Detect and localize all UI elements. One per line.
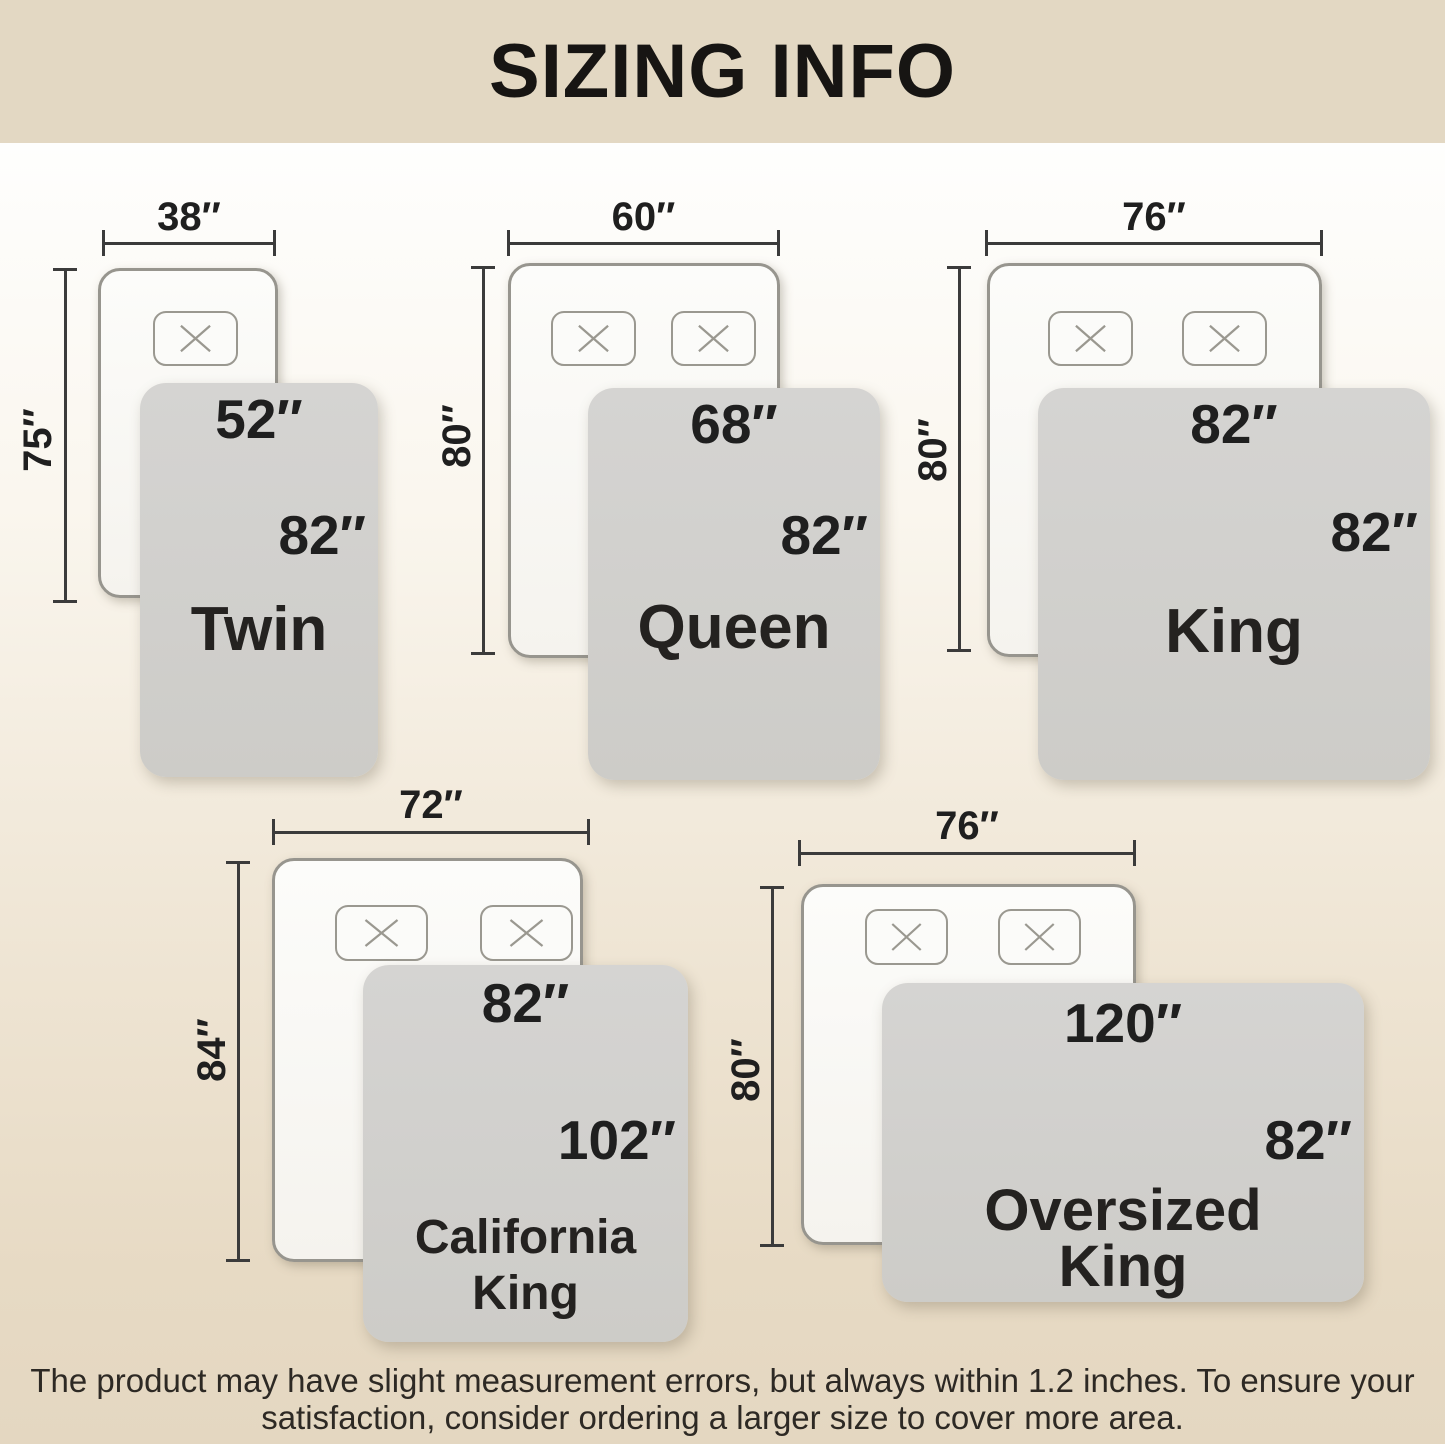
size-name-label: Queen	[588, 597, 880, 659]
bed-length-label: 80″	[725, 1010, 767, 1130]
blanket: 120″ 82″ Oversized King	[882, 983, 1364, 1302]
pillow-x-icon	[1050, 313, 1131, 364]
pillow	[480, 905, 573, 961]
bed-width-label: 72″	[272, 784, 590, 826]
bed-width-dimension-line	[272, 831, 590, 834]
pillow	[153, 311, 238, 366]
blanket-length-label: 82″	[780, 507, 868, 563]
pillow	[671, 311, 756, 366]
blanket-length-label: 82″	[278, 507, 366, 563]
bed-width-dimension-line	[985, 242, 1323, 245]
pillow-x-icon	[1000, 911, 1079, 963]
header: SIZING INFO	[0, 0, 1445, 143]
bed-length-dimension-line	[958, 266, 961, 652]
size-name-label: Twin	[140, 599, 378, 661]
blanket: 82″ 82″ King	[1038, 388, 1430, 780]
pillow-x-icon	[553, 313, 634, 364]
bed-length-dimension-line	[64, 268, 67, 603]
pillow	[1182, 311, 1267, 366]
footer-note: The product may have slight measurement …	[0, 1362, 1445, 1436]
bed-length-label: 84″	[191, 990, 233, 1110]
bed-length-dimension-line	[771, 886, 774, 1247]
blanket: 68″ 82″ Queen	[588, 388, 880, 780]
pillow-x-icon	[673, 313, 754, 364]
pillow	[1048, 311, 1133, 366]
bed-width-dimension-line	[798, 852, 1136, 855]
bed-width-dimension-line	[507, 242, 780, 245]
bed-width-label: 60″	[507, 196, 780, 238]
bed-length-dimension-line	[237, 861, 240, 1262]
bed-length-dimension-line	[482, 266, 485, 655]
pillow-x-icon	[867, 911, 946, 963]
pillow-x-icon	[155, 313, 236, 364]
bed-width-label: 76″	[985, 196, 1323, 238]
bed-length-label: 80″	[436, 376, 478, 496]
size-name-label: California King	[363, 1210, 688, 1322]
bed-width-label: 76″	[798, 805, 1136, 847]
blanket-length-label: 82″	[1330, 504, 1418, 560]
blanket-width-label: 82″	[363, 975, 688, 1031]
pillow-x-icon	[337, 907, 426, 959]
blanket: 82″ 102″ California King	[363, 965, 688, 1342]
bed-width-dimension-line	[102, 242, 276, 245]
blanket-width-label: 120″	[882, 995, 1364, 1051]
footer-note-line-1: The product may have slight measurement …	[0, 1362, 1445, 1399]
blanket-width-label: 68″	[588, 396, 880, 452]
pillow	[998, 909, 1081, 965]
blanket: 52″ 82″ Twin	[140, 383, 378, 777]
bed-length-label: 75″	[17, 380, 59, 500]
page-title: SIZING INFO	[489, 28, 956, 115]
footer-note-line-2: satisfaction, consider ordering a larger…	[0, 1399, 1445, 1436]
pillow	[865, 909, 948, 965]
pillow-x-icon	[1184, 313, 1265, 364]
pillow	[335, 905, 428, 961]
pillow	[551, 311, 636, 366]
bed-length-label: 80″	[912, 390, 954, 510]
size-name-label: King	[1038, 601, 1430, 663]
pillow-x-icon	[482, 907, 571, 959]
blanket-length-label: 82″	[1264, 1112, 1352, 1168]
blanket-width-label: 52″	[140, 391, 378, 447]
sizing-info-page: SIZING INFO 38″ 75″ 52″ 82″ Twin 60″ 80″	[0, 0, 1445, 1444]
bed-width-label: 38″	[102, 196, 276, 238]
blanket-length-label: 102″	[558, 1112, 676, 1168]
size-name-label: Oversized King	[882, 1183, 1364, 1295]
blanket-width-label: 82″	[1038, 396, 1430, 452]
